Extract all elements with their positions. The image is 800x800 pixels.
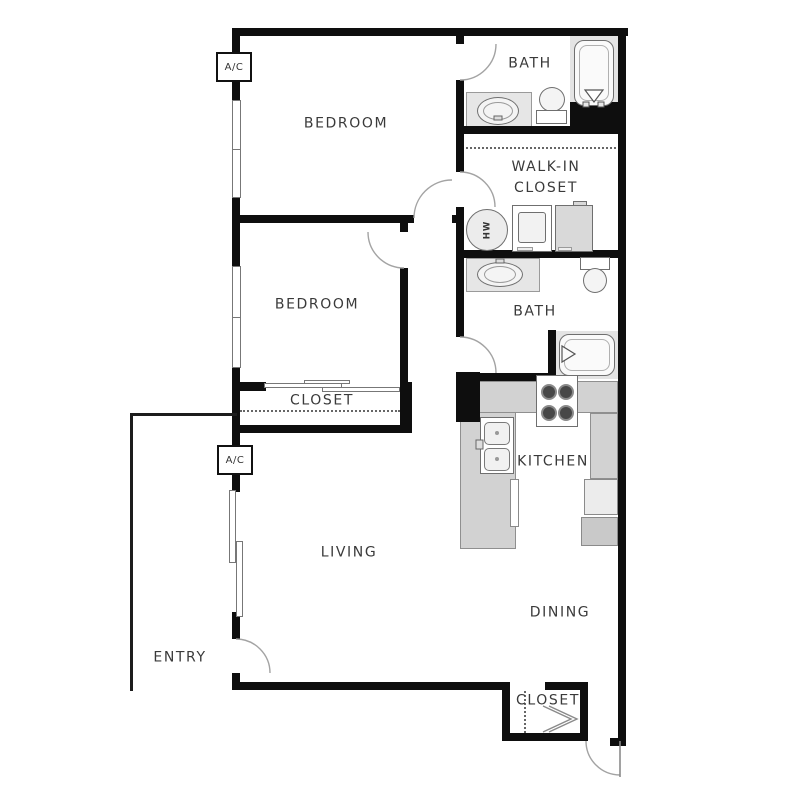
wall-segment [400, 382, 412, 425]
bedroom2-label: BEDROOM [275, 295, 359, 316]
water-heater-label: HW [482, 221, 492, 240]
wall-segment [610, 738, 626, 746]
stove [536, 375, 578, 427]
wall-right [618, 28, 626, 746]
door-arc-bedroom2 [368, 232, 404, 268]
toilet-bath2-bowl [583, 268, 607, 293]
toilet-bath1-tank [536, 110, 567, 124]
wall-segment [232, 382, 266, 391]
bathtub-2-inner [564, 339, 610, 371]
wall-bottom [232, 682, 510, 690]
wall-top [232, 28, 628, 36]
walkin-closet-label: WALK-IN CLOSET [511, 157, 580, 199]
entry-closet-label: CLOSET [516, 691, 580, 712]
wall-closet-south [232, 425, 412, 433]
wall-segment [232, 366, 240, 433]
dining-label: DINING [530, 603, 590, 624]
wall-entry-closet-right [580, 688, 588, 733]
water-heater: HW [466, 209, 508, 251]
wall-segment [456, 36, 464, 44]
bedroom1-label: BEDROOM [304, 114, 388, 135]
door-arc-bath2 [460, 337, 496, 373]
kitchen-counter-right [590, 413, 618, 479]
kitchen-label: KITCHEN [517, 452, 589, 473]
floor-plan: HW A/C A/C BEDROOM BATH WALK-IN CLOSET B… [0, 0, 800, 800]
ac-unit-top-label: A/C [225, 62, 244, 73]
wall-segment [456, 207, 464, 337]
ac-unit-living: A/C [217, 445, 253, 475]
window-divider [232, 317, 241, 318]
door-arc-patio [586, 741, 620, 775]
door-arc-bedroom1 [414, 180, 452, 218]
bath1-label: BATH [508, 54, 552, 75]
bath2-label: BATH [513, 302, 557, 323]
wall-tub2-side [548, 330, 556, 381]
entry-label: ENTRY [153, 648, 206, 669]
dishwasher [584, 479, 618, 515]
wall-segment [400, 223, 408, 232]
sliding-door-handle [304, 380, 350, 384]
wall-segment [232, 223, 240, 268]
counter-cabinet [510, 479, 519, 527]
door-arc-bath1 [460, 44, 496, 80]
window-living-lower [236, 541, 243, 617]
sink-bath2-basin [484, 266, 516, 283]
bathtub-1-inner [579, 45, 609, 101]
patio-line-vertical [130, 413, 133, 691]
kitchen-sink-basin [484, 448, 510, 471]
dryer [555, 205, 593, 252]
window-living-upper [229, 490, 236, 563]
wall-bedroom-divider [232, 215, 414, 223]
door-arc-walkin [460, 172, 495, 207]
patio-line-horizontal [130, 413, 237, 416]
sink-bath1-basin [483, 102, 513, 120]
washer-door [518, 212, 546, 243]
ac-unit-top: A/C [216, 52, 252, 82]
ac-unit-living-label: A/C [226, 455, 245, 466]
wall-bedroom2-east [400, 268, 408, 382]
washer-foot [517, 247, 533, 251]
door-arc-entry [236, 639, 270, 673]
wall-entry-closet-bottom [502, 733, 588, 741]
living-label: LIVING [321, 543, 378, 564]
kitchen-sink-basin [484, 422, 510, 445]
window-divider [232, 149, 241, 150]
toilet-bath1-bowl [539, 87, 565, 112]
dryer-foot [558, 247, 572, 251]
refrigerator [581, 517, 618, 546]
wall-bath1-closet-divider [456, 126, 626, 134]
walkin-shelf-line [466, 147, 616, 149]
bedroom2-closet-label: CLOSET [290, 391, 354, 412]
wall-segment [545, 682, 588, 690]
